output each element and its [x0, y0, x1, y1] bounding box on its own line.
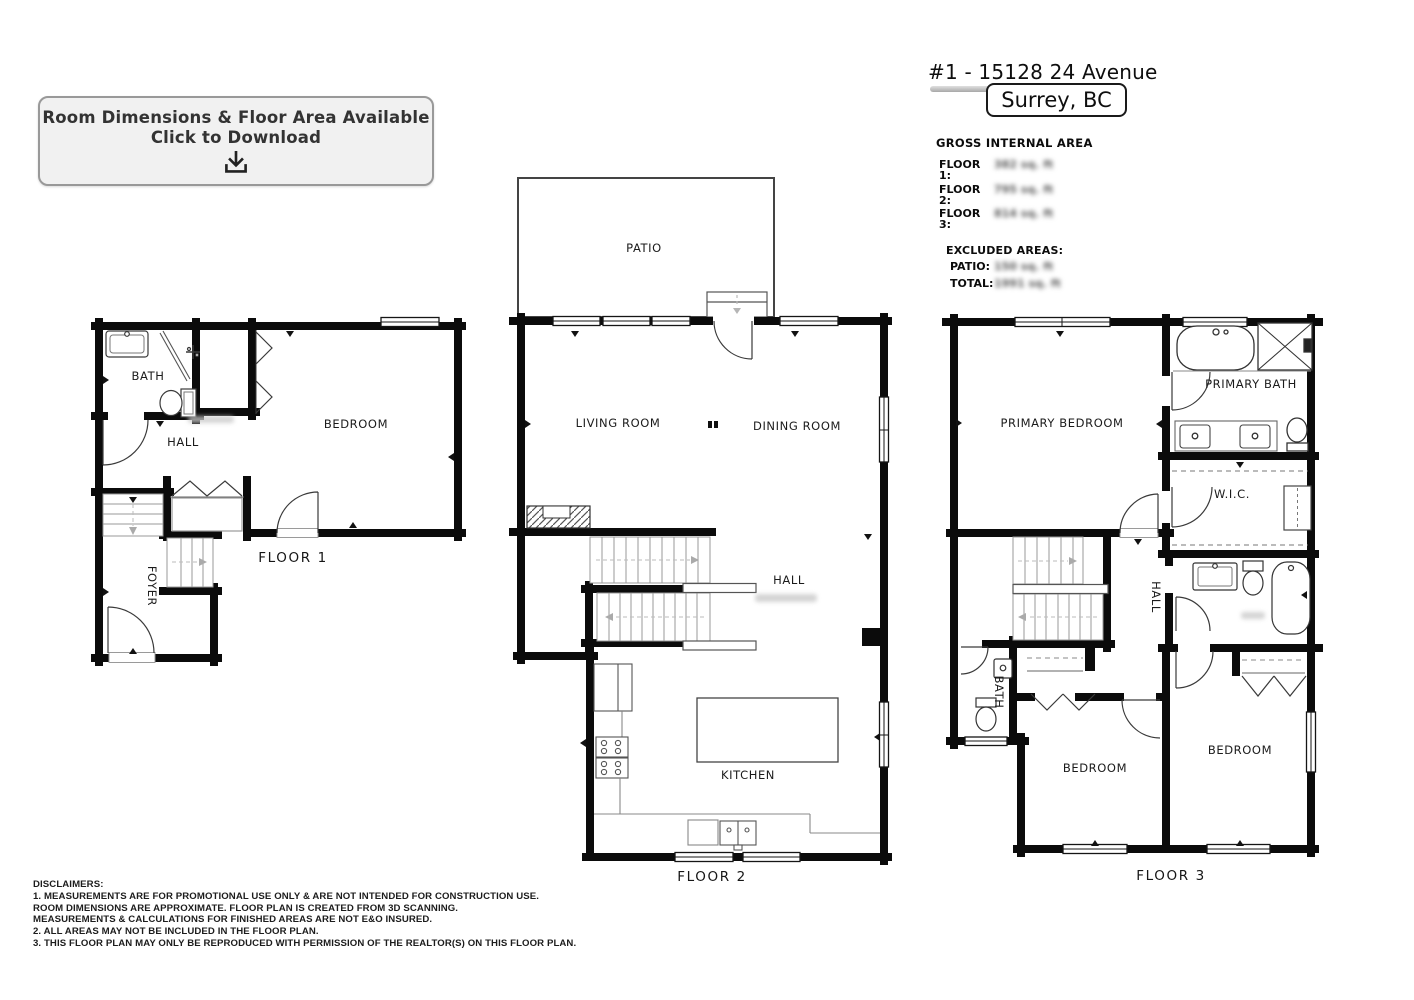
understair-closet [170, 481, 244, 531]
stairs [590, 537, 756, 650]
floor3-primary-bath-label: PRIMARY BATH [1205, 377, 1297, 391]
download-icon [221, 151, 251, 175]
floor1-plan: BATH HALL BEDROOM FOYER FLOOR 1 [95, 318, 462, 663]
disclaimers-title: DISCLAIMERS: [33, 879, 593, 891]
floor2-dining-room-label: DINING ROOM [753, 419, 841, 433]
area-row-total: TOTAL: 1991 sq. ft [950, 278, 1156, 290]
area-summary-title: GROSS INTERNAL AREA [936, 136, 1156, 150]
area-row-floor2: FLOOR 2: 795 sq. ft [939, 184, 1156, 206]
stairs [1013, 537, 1108, 640]
floor2-kitchen-label: KITCHEN [721, 768, 775, 782]
area-value-blurred: 1991 sq. ft [994, 278, 1061, 290]
floor3-primary-bedroom-label: PRIMARY BEDROOM [1000, 416, 1123, 430]
area-value-blurred: 814 sq. ft [994, 208, 1053, 230]
window [381, 318, 439, 327]
disclaimer-line: 3. THIS FLOOR PLAN MAY ONLY BE REPRODUCE… [33, 938, 593, 950]
floor2-living-room-label: LIVING ROOM [576, 416, 661, 430]
area-row-floor1: FLOOR 1: 382 sq. ft [939, 159, 1156, 181]
download-banner-button[interactable]: Room Dimensions & Floor Area Available C… [38, 96, 434, 186]
floor1-foyer-label: FOYER [145, 566, 159, 606]
page-title: #1 - 15128 24 Avenue [928, 60, 1228, 84]
disclaimer-line: 2. ALL AREAS MAY NOT BE INCLUDED IN THE … [33, 926, 593, 938]
download-banner-line2: Click to Download [151, 128, 321, 147]
bath-fixtures [1193, 561, 1310, 634]
header-divider [930, 86, 990, 92]
floor3-hall-label: HALL [1149, 581, 1163, 613]
area-value-blurred: 150 sq. ft [994, 261, 1053, 273]
floor1-caption: FLOOR 1 [258, 550, 328, 566]
floor3-bedroom-left-label: BEDROOM [1063, 761, 1127, 775]
download-banner-line1: Room Dimensions & Floor Area Available [42, 108, 429, 127]
floor1-bath-label: BATH [132, 369, 165, 383]
closet-door-chevrons [256, 330, 272, 414]
floor3-bath-label: BATH [992, 676, 1006, 709]
wic-closet [1172, 471, 1311, 545]
area-value-blurred: 795 sq. ft [994, 184, 1053, 206]
disclaimer-line: ROOM DIMENSIONS ARE APPROXIMATE. FLOOR P… [33, 903, 593, 915]
location-badge: Surrey, BC [986, 83, 1127, 117]
floor2-plan: PATIO LIVING ROOM DINING ROOM HALL KITCH… [513, 178, 889, 885]
disclaimer-line: 1. MEASUREMENTS ARE FOR PROMOTIONAL USE … [33, 891, 593, 903]
floor2-caption: FLOOR 2 [677, 869, 747, 885]
floor3-wic-label: W.I.C. [1214, 487, 1250, 501]
disclaimer-line: MEASUREMENTS & CALCULATIONS FOR FINISHED… [33, 914, 593, 926]
disclaimers: DISCLAIMERS: 1. MEASUREMENTS ARE FOR PRO… [33, 879, 593, 950]
area-summary: GROSS INTERNAL AREA FLOOR 1: 382 sq. ft … [936, 136, 1156, 295]
floorplan-page: { "download_banner": { "line1": "Room Di… [0, 0, 1414, 1000]
floor2-hall-label: HALL [773, 573, 805, 587]
area-row-floor3: FLOOR 3: 814 sq. ft [939, 208, 1156, 230]
floor3-caption: FLOOR 3 [1136, 868, 1206, 884]
area-row-patio: PATIO: 150 sq. ft [950, 261, 1156, 273]
kitchen-fixtures [594, 664, 880, 850]
floor1-hall-label: HALL [167, 435, 199, 449]
area-value-blurred: 382 sq. ft [994, 159, 1053, 181]
excluded-areas-title: EXCLUDED AREAS: [946, 244, 1156, 257]
floor2-patio-label: PATIO [626, 241, 662, 255]
floor1-bedroom-label: BEDROOM [324, 417, 388, 431]
fireplace [527, 506, 590, 528]
floor3-plan: PRIMARY BEDROOM PRIMARY BATH W.I.C. HALL… [946, 318, 1319, 885]
floor3-bedroom-right-label: BEDROOM [1208, 743, 1272, 757]
